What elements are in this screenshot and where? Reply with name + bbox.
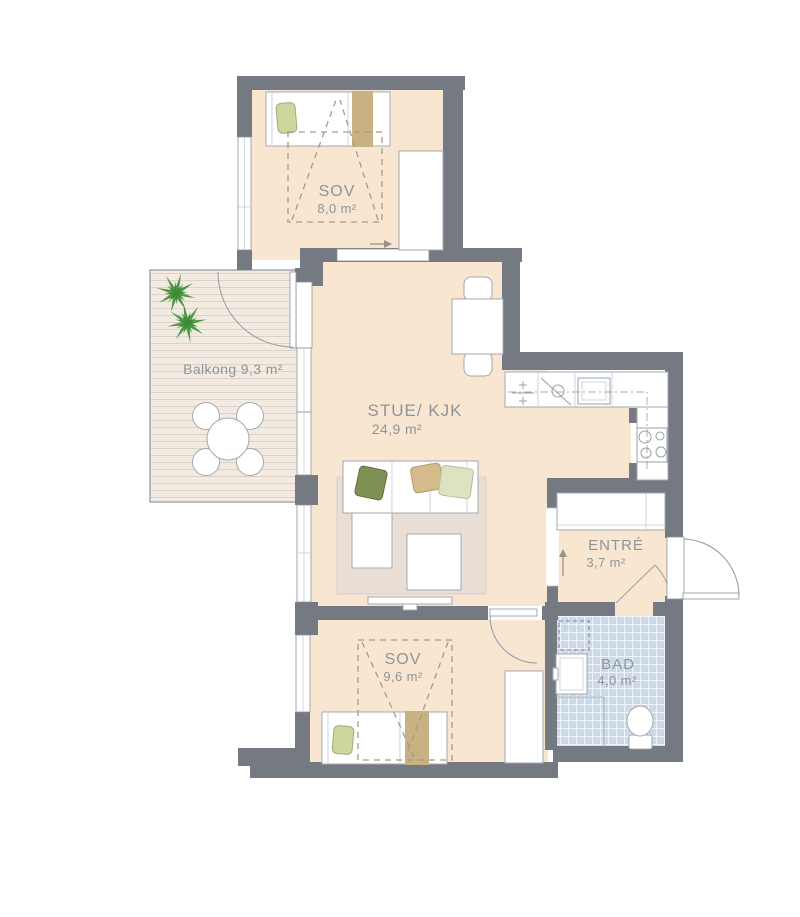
room-area-stue-kjk: 24,9 m² (372, 421, 422, 437)
wardrobe (505, 671, 543, 763)
window (296, 635, 310, 712)
room-area-sov-top: 8,0 m² (317, 201, 357, 216)
entrance-door (667, 537, 739, 599)
room-label-entre: ENTRÉ (588, 537, 644, 554)
toilet (627, 706, 653, 749)
dining-table (452, 299, 503, 354)
bed-blanket (352, 91, 373, 147)
dining-chair (464, 277, 492, 301)
dining-chair (464, 352, 492, 376)
bed (266, 91, 390, 147)
balcony-table (207, 418, 249, 460)
room-area-entre: 3,7 m² (586, 555, 626, 570)
room-area-bad: 4,0 m² (597, 673, 637, 688)
room-area-sov-bottom: 9,6 m² (383, 669, 423, 684)
entre-wardrobe (557, 493, 665, 530)
sofa-cushion (354, 465, 388, 500)
wardrobe (399, 151, 443, 250)
bed-pillow (332, 725, 354, 755)
bed-blanket (405, 711, 429, 765)
bathroom-sink (553, 654, 587, 694)
room-label-balcony: Balkong 9,3 m² (183, 361, 283, 377)
window (297, 412, 311, 475)
floor-plan-page: SOV 8,0 m² Balkong 9,3 m² STUE/ KJK 24,9… (0, 0, 800, 917)
room-label-stue-kjk: STUE/ KJK (368, 401, 463, 420)
bed (322, 711, 447, 765)
kitchen-counter (637, 407, 668, 480)
floor-plan: SOV 8,0 m² Balkong 9,3 m² STUE/ KJK 24,9… (0, 0, 800, 917)
kitchen-front-floor (505, 407, 631, 480)
room-label-sov-top: SOV (319, 183, 356, 200)
window (297, 505, 311, 602)
kitchen-counter (505, 372, 668, 407)
sofa-cushion (438, 465, 474, 499)
bad-door-threshold (614, 602, 654, 616)
sliding-door (337, 249, 429, 261)
window (297, 348, 311, 412)
window (238, 137, 251, 250)
bed-pillow (276, 102, 298, 134)
room-label-bad: BAD (601, 656, 635, 673)
coffee-table (407, 534, 461, 590)
balcony-deck (150, 270, 310, 502)
room-label-sov-bottom: SOV (385, 651, 422, 668)
